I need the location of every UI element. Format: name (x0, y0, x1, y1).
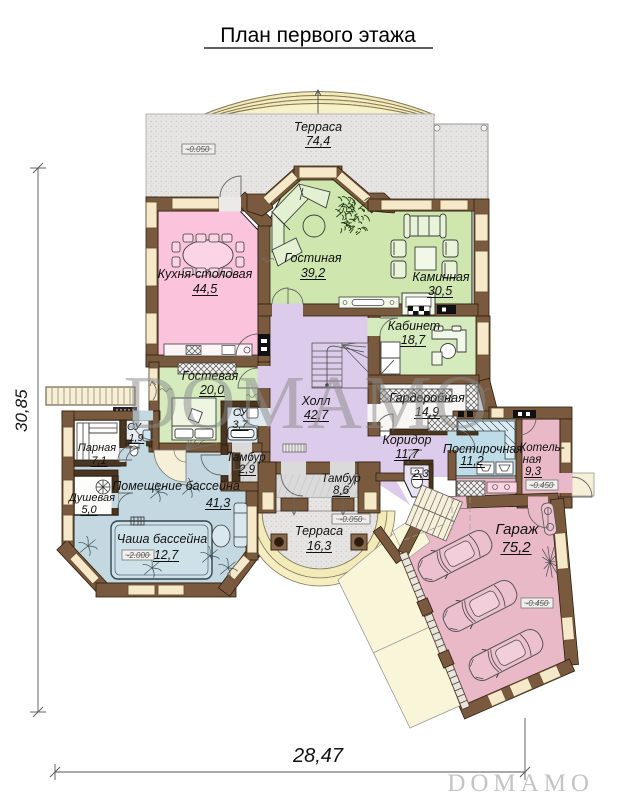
svg-text:Тамбур: Тамбур (321, 473, 361, 485)
svg-text:39,2: 39,2 (301, 266, 325, 280)
svg-text:74,4: 74,4 (306, 134, 330, 148)
svg-text:41,3: 41,3 (206, 496, 230, 510)
svg-text:DOMAMO: DOMAMO (447, 770, 594, 797)
svg-text:44,5: 44,5 (193, 282, 217, 296)
svg-text:План первого этажа: План первого этажа (220, 24, 416, 47)
svg-text:Душевая: Душевая (67, 492, 115, 504)
svg-text:Каминная: Каминная (412, 270, 470, 284)
svg-text:Чаша бассейна: Чаша бассейна (117, 532, 207, 546)
svg-text:Кухня-столовая: Кухня-столовая (158, 267, 253, 281)
svg-text:28,47: 28,47 (292, 745, 344, 767)
svg-text:-0.450: -0.450 (531, 481, 554, 490)
svg-text:Помещение бассейна: Помещение бассейна (112, 479, 240, 493)
svg-text:11,2: 11,2 (460, 454, 483, 468)
svg-text:18,7: 18,7 (401, 333, 426, 347)
svg-text:12,7: 12,7 (154, 548, 179, 562)
svg-text:Терраса: Терраса (295, 524, 343, 538)
svg-text:30,85: 30,85 (12, 389, 31, 432)
svg-text:Терраса: Терраса (294, 120, 342, 134)
svg-text:75,2: 75,2 (501, 539, 531, 556)
svg-text:5,0: 5,0 (81, 504, 97, 516)
svg-text:8,6: 8,6 (333, 485, 350, 497)
svg-text:DOMAMO: DOMAMO (124, 361, 491, 445)
svg-text:9,3: 9,3 (525, 466, 542, 478)
svg-text:Кабинет: Кабинет (388, 319, 440, 333)
svg-text:-0.450: -0.450 (526, 599, 549, 608)
svg-text:16,3: 16,3 (307, 539, 331, 553)
svg-text:2,9: 2,9 (238, 464, 256, 476)
svg-text:11,7: 11,7 (395, 447, 419, 461)
svg-text:2,3: 2,3 (412, 468, 429, 480)
svg-text:Котель-: Котель- (519, 442, 564, 454)
svg-text:30,5: 30,5 (428, 284, 452, 298)
svg-text:Гостиная: Гостиная (284, 251, 341, 265)
svg-text:7,1: 7,1 (91, 455, 106, 467)
svg-text:-2.000: -2.000 (127, 551, 150, 560)
svg-text:ная: ная (523, 454, 542, 466)
svg-text:-0.050: -0.050 (340, 515, 363, 524)
svg-text:Тамбур: Тамбур (226, 452, 266, 464)
svg-text:-0.050: -0.050 (187, 145, 210, 154)
svg-text:Гараж: Гараж (495, 521, 539, 538)
svg-text:Парная: Парная (78, 442, 116, 454)
